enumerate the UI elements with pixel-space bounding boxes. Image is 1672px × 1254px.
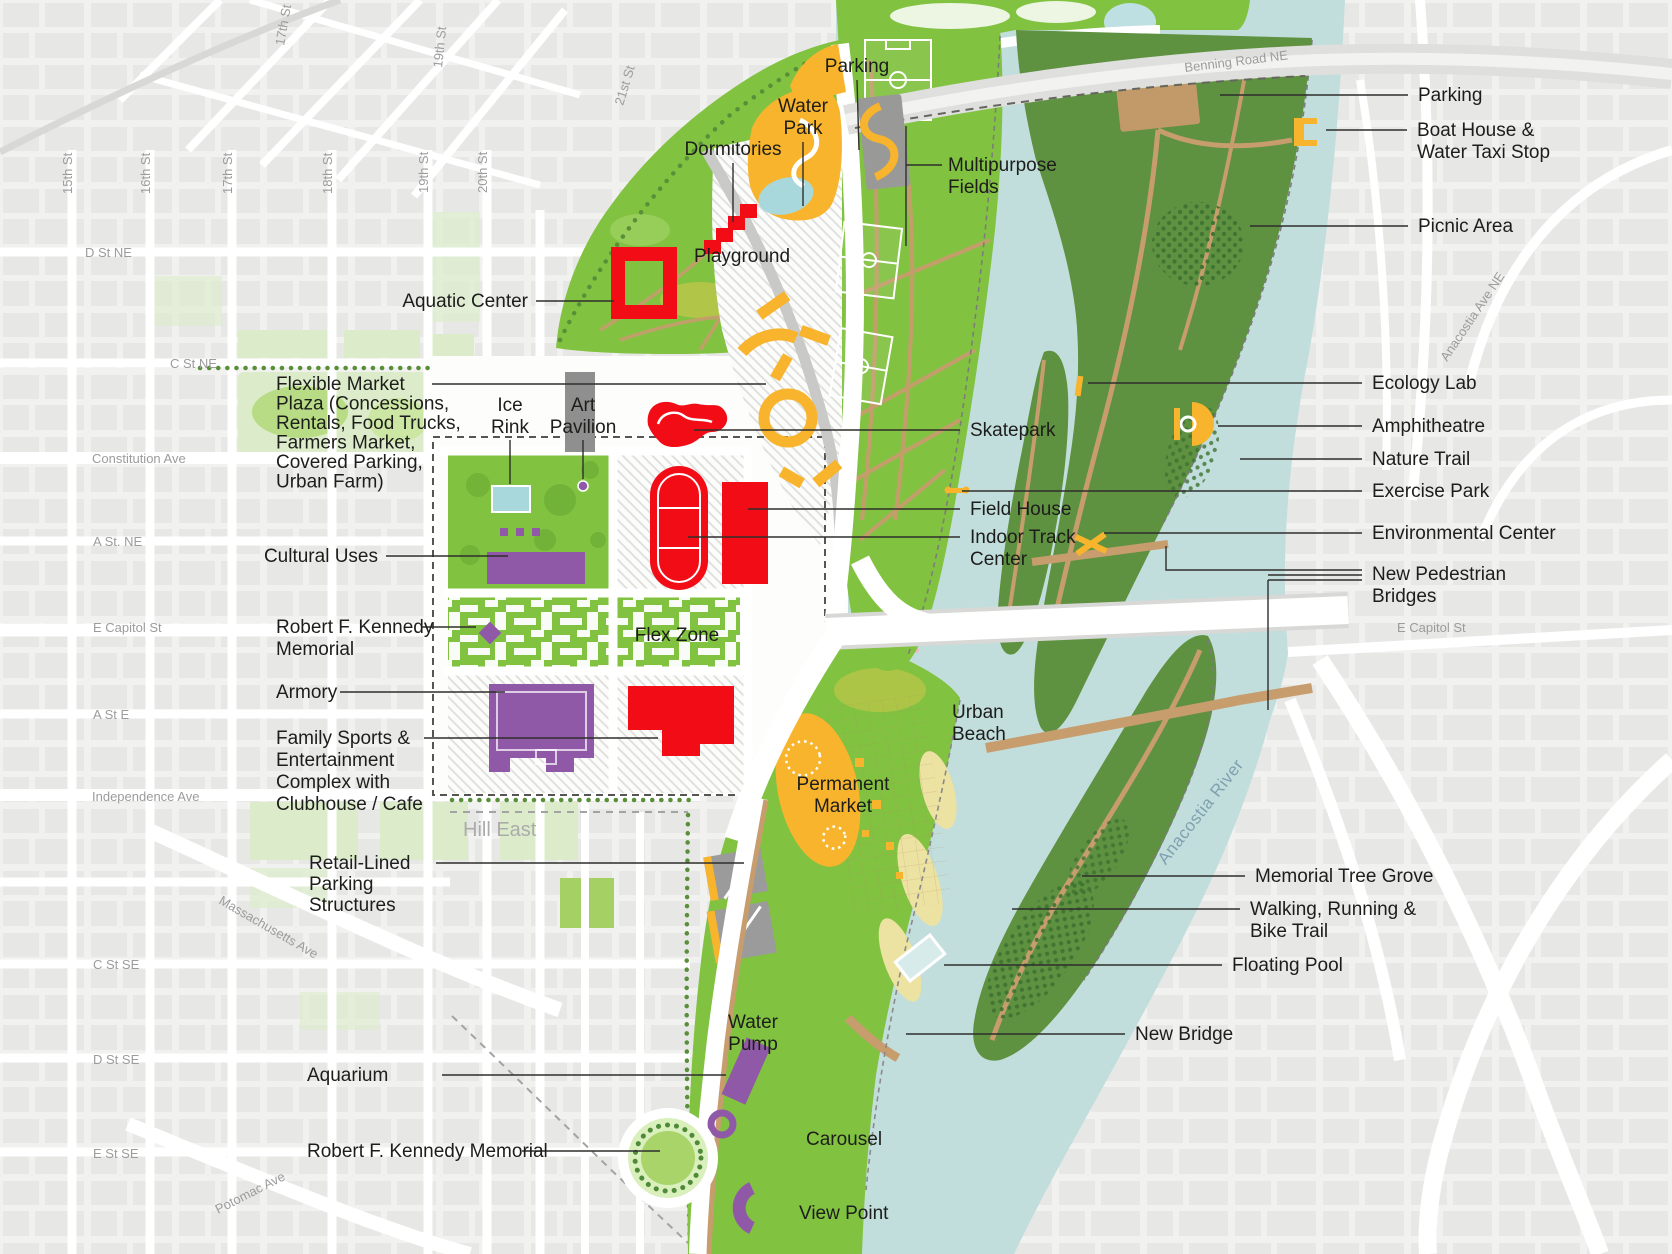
street-label: Independence Ave [92,789,199,804]
art-pavilion-dot-icon [578,481,588,491]
street-label: E Capitol St [1397,620,1466,635]
callout-label-armory: Armory [276,682,338,703]
street-label: 16th St [138,152,153,194]
callout-label-view-point: View Point [799,1203,889,1224]
map-canvas: ParkingWaterParkDormitoriesPlaygroundAqu… [0,0,1672,1254]
rfk-memorial-circle-icon [618,1108,718,1208]
callout-playground: Playground [694,246,790,267]
cultural-uses-building [487,552,585,584]
callout-label-nature-trail: Nature Trail [1372,449,1470,470]
callout-label-water-pump: WaterPump [728,1012,779,1055]
street-label: 15th St [60,152,75,194]
callout-label-skatepark: Skatepark [970,420,1056,441]
callout-label-new-bridge: New Bridge [1135,1024,1233,1045]
street-label: D St SE [93,1052,140,1067]
ice-rink-feature [492,486,530,512]
callout-label-exercise-park: Exercise Park [1372,481,1490,502]
street-label: 19th St [416,151,431,193]
callout-label-flex-zone: Flex Zone [635,625,719,646]
callout-water-pump: WaterPump [728,1012,779,1055]
callout-label-amphitheatre: Amphitheatre [1372,416,1485,437]
callout-carousel: Carousel [806,1129,882,1150]
street-label: E St SE [93,1146,139,1161]
callout-label-ecology-lab: Ecology Lab [1372,373,1477,394]
callout-label-aquarium: Aquarium [307,1065,388,1086]
callout-label-aquatic-center: Aquatic Center [402,291,528,312]
callout-label-parking-east: Parking [1418,85,1482,106]
callout-label-parking-north: Parking [825,56,889,77]
field-house-building [722,482,768,584]
callout-label-cultural-uses: Cultural Uses [264,546,378,567]
site-plan-map: ParkingWaterParkDormitoriesPlaygroundAqu… [0,0,1672,1254]
callout-view-point: View Point [799,1203,889,1224]
callout-label-boat-house: Boat House &Water Taxi Stop [1417,120,1550,163]
callout-label-environmental-center: Environmental Center [1372,523,1556,544]
street-label: C St SE [93,957,140,972]
street-label: A St. NE [93,534,142,549]
callout-label-water-park: WaterPark [778,96,829,139]
callout-label-picnic-area: Picnic Area [1418,216,1513,237]
picnic-grove [1152,202,1244,286]
callout-label-floating-pool: Floating Pool [1232,955,1343,976]
street-label: C St NE [170,356,217,371]
street-label: D St NE [85,245,132,260]
indoor-track-feature [650,466,708,590]
street-label: Constitution Ave [92,451,186,466]
callout-label-dormitories: Dormitories [684,139,781,160]
callout-urban-beach: UrbanBeach [952,702,1006,745]
callout-flex-zone: Flex Zone [635,625,719,646]
callout-label-urban-beach: UrbanBeach [952,702,1006,745]
callout-label-playground: Playground [694,246,790,267]
callout-label-rfk-memorial-south: Robert F. Kennedy Memorial [307,1141,548,1162]
callout-label-memorial-tree-grove: Memorial Tree Grove [1255,866,1433,887]
street-label: E Capitol St [93,620,162,635]
district-label: Hill East [463,819,537,841]
street-label: 20th St [475,151,490,193]
street-label: 17th St [220,152,235,194]
callout-label-field-house: Field House [970,499,1071,520]
callout-label-carousel: Carousel [806,1129,882,1150]
street-label: A St E [93,707,129,722]
street-label: 18th St [320,152,335,194]
